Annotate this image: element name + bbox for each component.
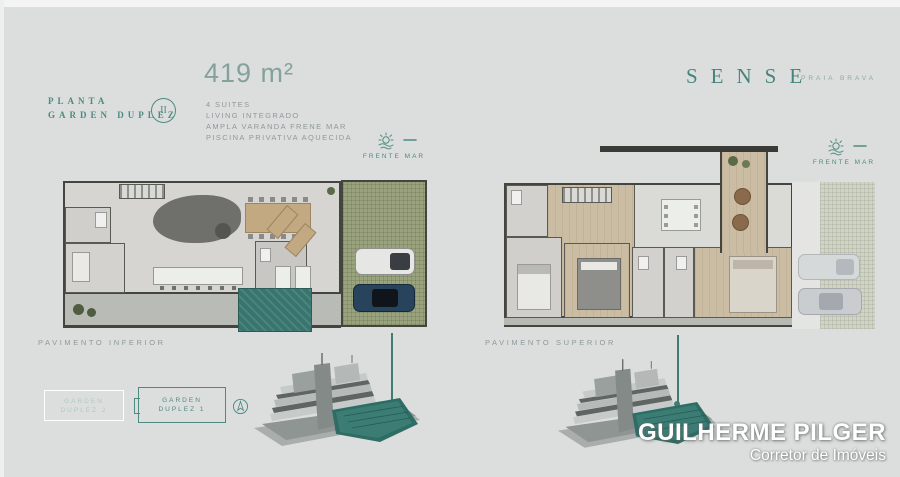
fixture (95, 212, 107, 228)
feature-list: 4 SUITES LIVING INTEGRADO AMPLA VARANDA … (206, 99, 352, 143)
compass-icon (232, 398, 249, 415)
brand-logo: SENSE (686, 64, 815, 89)
car-top-view-white (355, 248, 415, 275)
lawn (341, 180, 427, 327)
inferior-label: PAVIMENTO INFERIOR (38, 338, 166, 347)
suite-bedroom (506, 237, 562, 318)
brand-subtitle: PRAIA BRAVA (801, 75, 876, 82)
unit-area: 419 m² (204, 58, 294, 89)
fixture (260, 248, 271, 262)
pouf (734, 188, 751, 205)
car-top-view-ghost (798, 288, 862, 315)
fixture (72, 252, 90, 282)
feature-item: 4 SUITES (206, 99, 352, 110)
sun-over-sea-icon (368, 132, 420, 152)
dining-chairs (248, 197, 308, 202)
lower-level-ghost (792, 182, 875, 329)
unit-outline-garden-duplez-2: GARDEN DUPLEZ 2 (44, 390, 124, 421)
top-white-edge (0, 0, 900, 7)
suite-bedroom (564, 243, 630, 318)
fixture (676, 256, 687, 270)
plant (742, 160, 750, 168)
agent-name: GUILHERME PILGER (638, 419, 886, 447)
unit-outline-label: DUPLEZ 2 (60, 406, 107, 415)
dining-table-below (661, 199, 701, 231)
fixture (511, 190, 522, 205)
stairs (119, 184, 165, 199)
bed (729, 256, 777, 313)
kitchen-island (153, 267, 243, 285)
seafront-badge-left: FRENTE MAR (362, 132, 426, 160)
seafront-label: FRENTE MAR (362, 153, 426, 160)
floorplan-inferior (35, 178, 427, 334)
feature-item: LIVING INTEGRADO (206, 110, 352, 121)
building-render-left (252, 350, 422, 448)
fixture (638, 256, 649, 270)
agent-branding: GUILHERME PILGER Corretor de Imóveis (638, 419, 886, 465)
pouf (732, 214, 749, 231)
feature-item: PISCINA PRIVATIVA AQUECIDA (206, 132, 352, 143)
unit-outline-label: DUPLEZ 1 (158, 405, 205, 414)
bathroom (506, 185, 548, 237)
stools (160, 286, 236, 290)
unit-outline-garden-duplez-1: GARDEN DUPLEZ 1 (138, 387, 226, 423)
unit-outline-label: GARDEN (64, 397, 104, 406)
unit-outline-label: GARDEN (162, 396, 202, 405)
shrub (87, 308, 96, 317)
bridge-walkway (720, 152, 768, 253)
bathrooms (632, 247, 694, 318)
pillows (518, 265, 550, 274)
pillows (733, 260, 773, 269)
balcony-edge (504, 318, 792, 327)
car-top-view-ghost (798, 254, 860, 280)
wall (663, 248, 665, 317)
car-top-view-blue (353, 284, 415, 312)
ottoman (215, 223, 231, 239)
car-cabin (390, 253, 410, 270)
feature-item: AMPLA VARANDA FRENE MAR (206, 121, 352, 132)
car-cabin (372, 289, 398, 307)
agent-role: Corretor de Imóveis (638, 447, 886, 465)
bathroom (65, 207, 111, 243)
plant (327, 187, 335, 195)
master-suite (694, 247, 792, 318)
unit-numeral-badge: II (151, 98, 176, 123)
private-pool (238, 288, 312, 332)
bed (577, 258, 621, 310)
floorplan-superior (482, 146, 878, 333)
shrub (73, 304, 84, 315)
car-cabin (836, 259, 854, 275)
plant (728, 156, 738, 166)
superior-label: PAVIMENTO SUPERIOR (485, 338, 616, 347)
pillows (581, 262, 617, 270)
unit-numeral: II (160, 105, 167, 116)
stairs (562, 187, 612, 203)
car-cabin (819, 293, 843, 310)
bed (517, 264, 551, 310)
left-white-edge (0, 0, 4, 477)
marketing-flyer: PLANTAGARDEN DUPLEZ II 419 m² 4 SUITES L… (0, 0, 900, 477)
plan-title-kicker: PLANTA (48, 96, 108, 106)
service-room (65, 243, 125, 293)
chairs (664, 203, 668, 227)
chairs (694, 203, 698, 227)
